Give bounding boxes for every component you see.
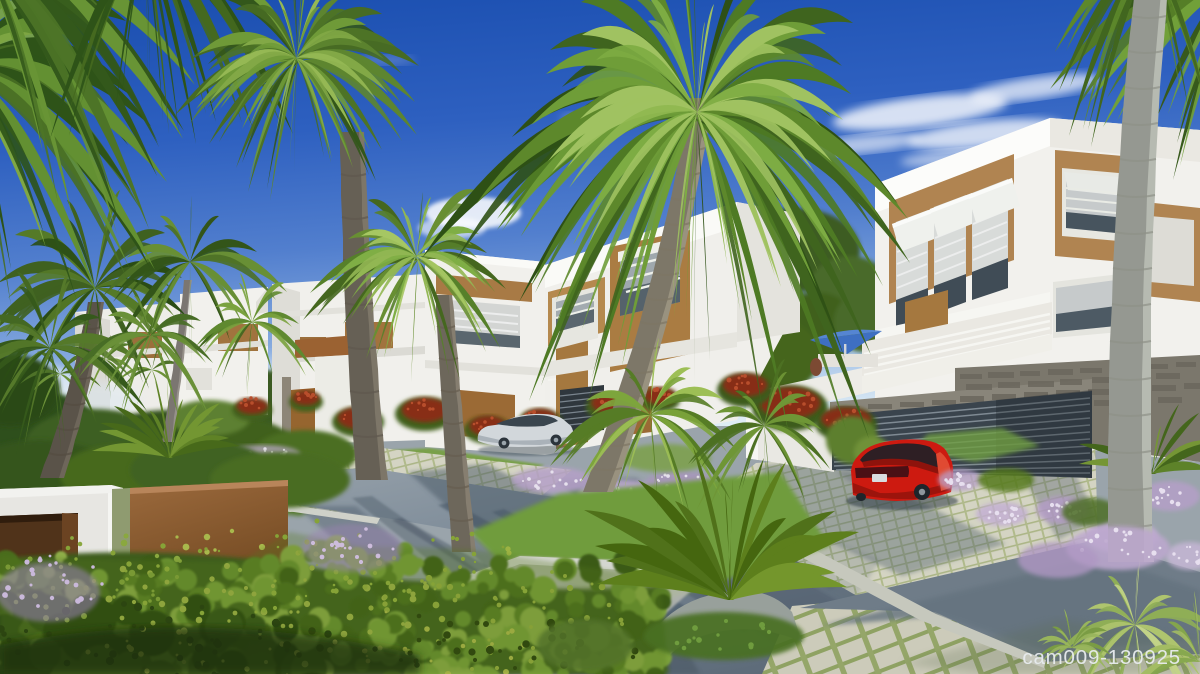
svg-text:cam009-130925: cam009-130925	[1022, 646, 1181, 669]
